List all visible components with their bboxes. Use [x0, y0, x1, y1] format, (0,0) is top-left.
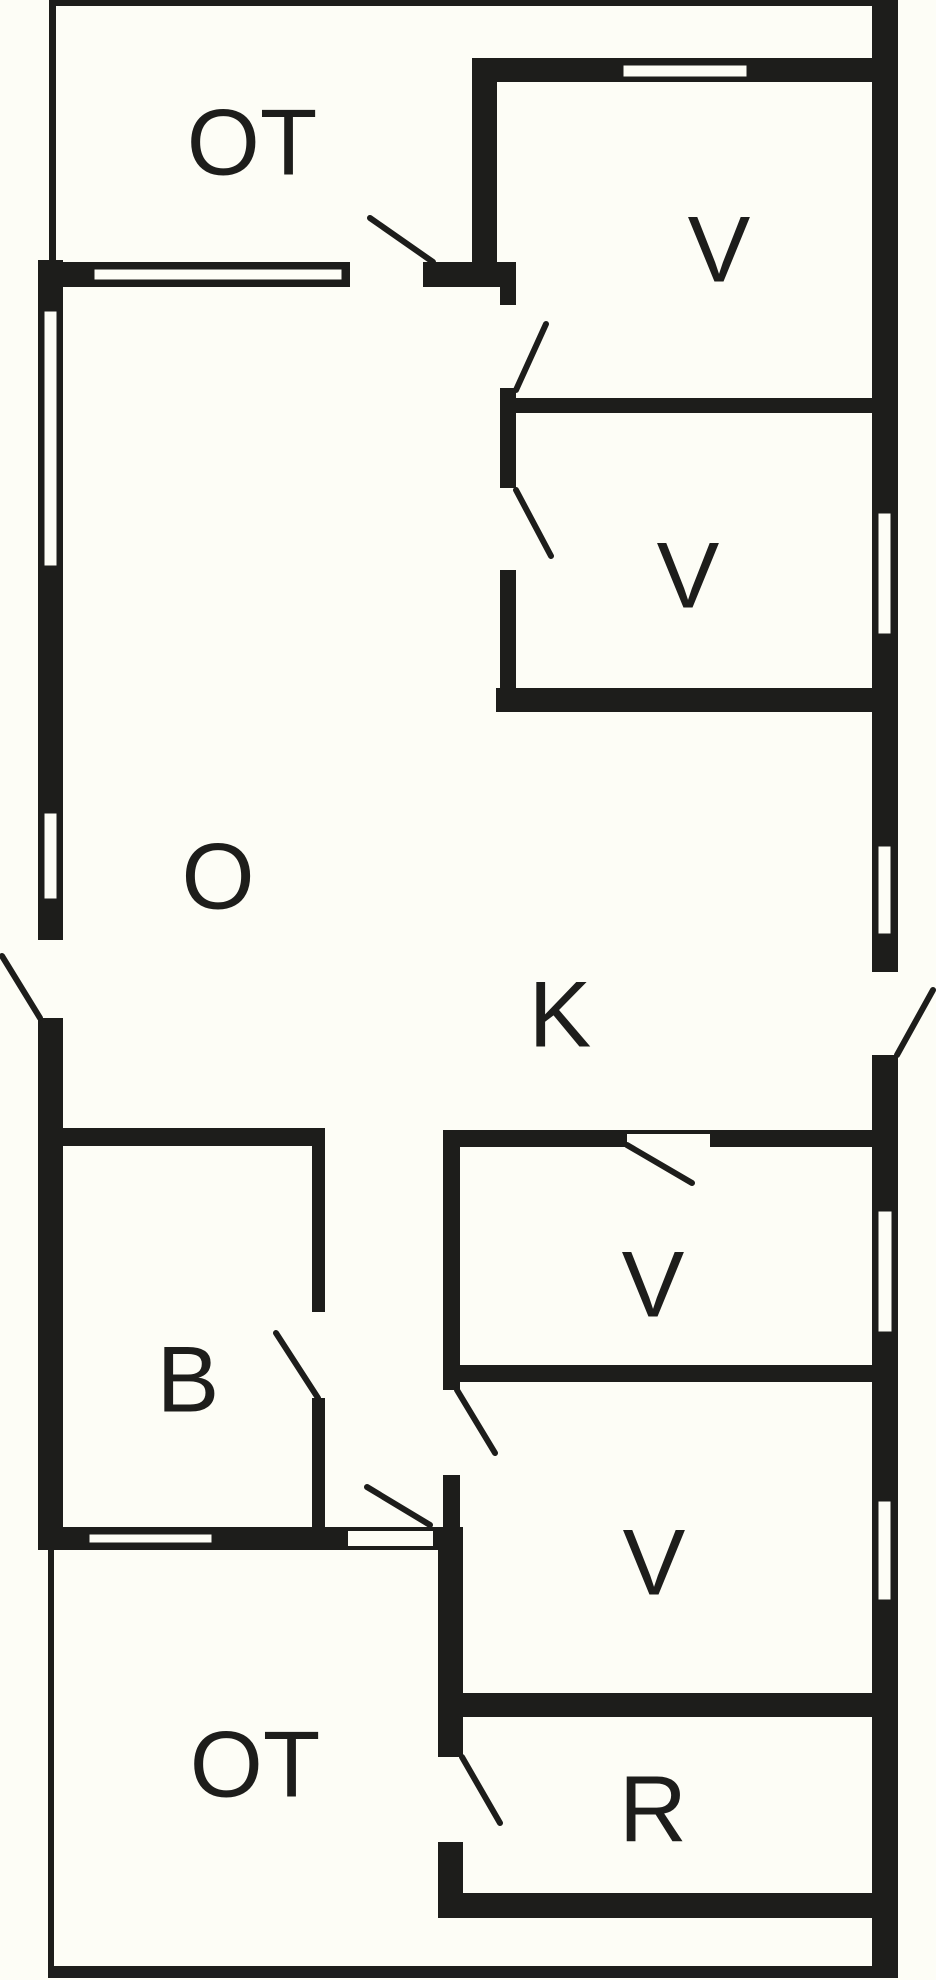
- wall-b-right-wall-b: [312, 1398, 325, 1527]
- wall-ot-bottom-left-edge: [48, 1550, 54, 1975]
- floor-plan-drawing: OTVVOKBVVROT: [0, 0, 936, 1980]
- wall-ot-top-left-edge: [49, 0, 56, 260]
- window-right-k: [877, 845, 892, 935]
- door-opening-ot-top-door-gap: [350, 262, 423, 287]
- window-right-v3: [877, 1210, 893, 1333]
- wall-ot-top-edge: [49, 0, 898, 6]
- room-label-v4: V: [623, 1510, 686, 1615]
- room-label-v1: V: [688, 197, 751, 302]
- wall-b-top-wall: [63, 1128, 325, 1146]
- wall-v3-left-wall-b: [443, 1475, 460, 1527]
- room-label-ot-bottom: OT: [190, 1712, 321, 1817]
- threshold-v3-door-sill: [627, 1130, 710, 1134]
- room-label-o: O: [181, 824, 254, 929]
- window-below-ot: [93, 268, 343, 281]
- wall-v4-r-wall: [463, 1693, 872, 1717]
- threshold-ot-bottom-door-sill-bottom: [348, 1546, 433, 1550]
- room-label-r: R: [619, 1757, 687, 1862]
- window-left-1: [43, 310, 58, 567]
- wall-b-right-wall-a: [312, 1146, 325, 1312]
- room-label-b: B: [157, 1327, 220, 1432]
- wall-v2-bottom-wall: [496, 688, 872, 712]
- door-opening-o-exterior-door-gap: [38, 940, 63, 1018]
- wall-v1-v2-wall: [500, 398, 872, 413]
- room-label-v2: V: [657, 523, 720, 628]
- room-label-ot-top: OT: [187, 90, 318, 195]
- door-opening-k-exterior-door-gap: [872, 972, 898, 1055]
- wall-v3-v4-wall: [458, 1365, 872, 1382]
- window-right-v4: [877, 1500, 892, 1601]
- threshold-ot-bottom-door-sill-top: [348, 1527, 433, 1531]
- window-right-v2: [877, 512, 892, 635]
- wall-ot-v1-divider: [472, 58, 497, 262]
- wall-ot-bottom-edge: [48, 1966, 898, 1978]
- wall-r-bottom-wall: [438, 1893, 872, 1918]
- wall-vestibule-wall-a: [500, 262, 516, 305]
- window-left-2: [43, 812, 58, 900]
- wall-corridor-bottom-block: [433, 1527, 463, 1550]
- wall-r-left-wall-a: [438, 1550, 463, 1757]
- floor-background: [0, 0, 936, 1980]
- wall-v3-left-wall-a: [443, 1147, 460, 1390]
- window-v1-top: [622, 64, 748, 78]
- room-label-v3: V: [622, 1232, 685, 1337]
- window-below-b: [88, 1533, 213, 1544]
- floor-plan: OTVVOKBVVROT: [0, 0, 936, 1980]
- room-label-k: K: [529, 962, 592, 1067]
